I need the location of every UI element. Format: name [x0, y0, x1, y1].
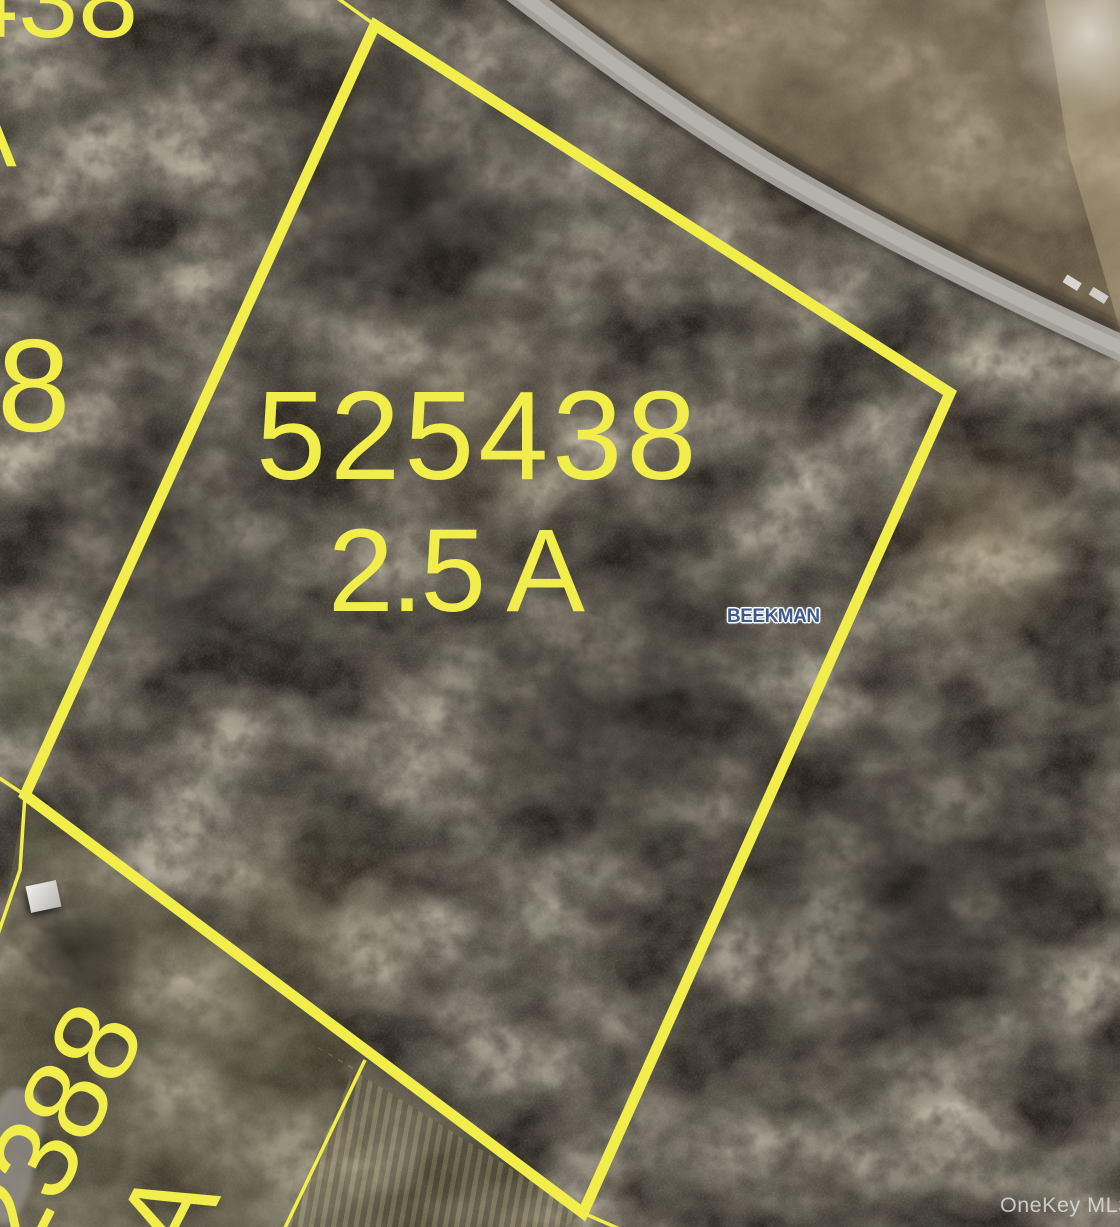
vehicles: [1063, 274, 1109, 304]
parcel-map: 525438 2.5 A BEEKMAN 438 A 8 2388 A OneK…: [0, 0, 1120, 1227]
adjacent-parcel-boundary-lines: [0, 0, 645, 1227]
map-overlay: [0, 0, 1120, 1227]
